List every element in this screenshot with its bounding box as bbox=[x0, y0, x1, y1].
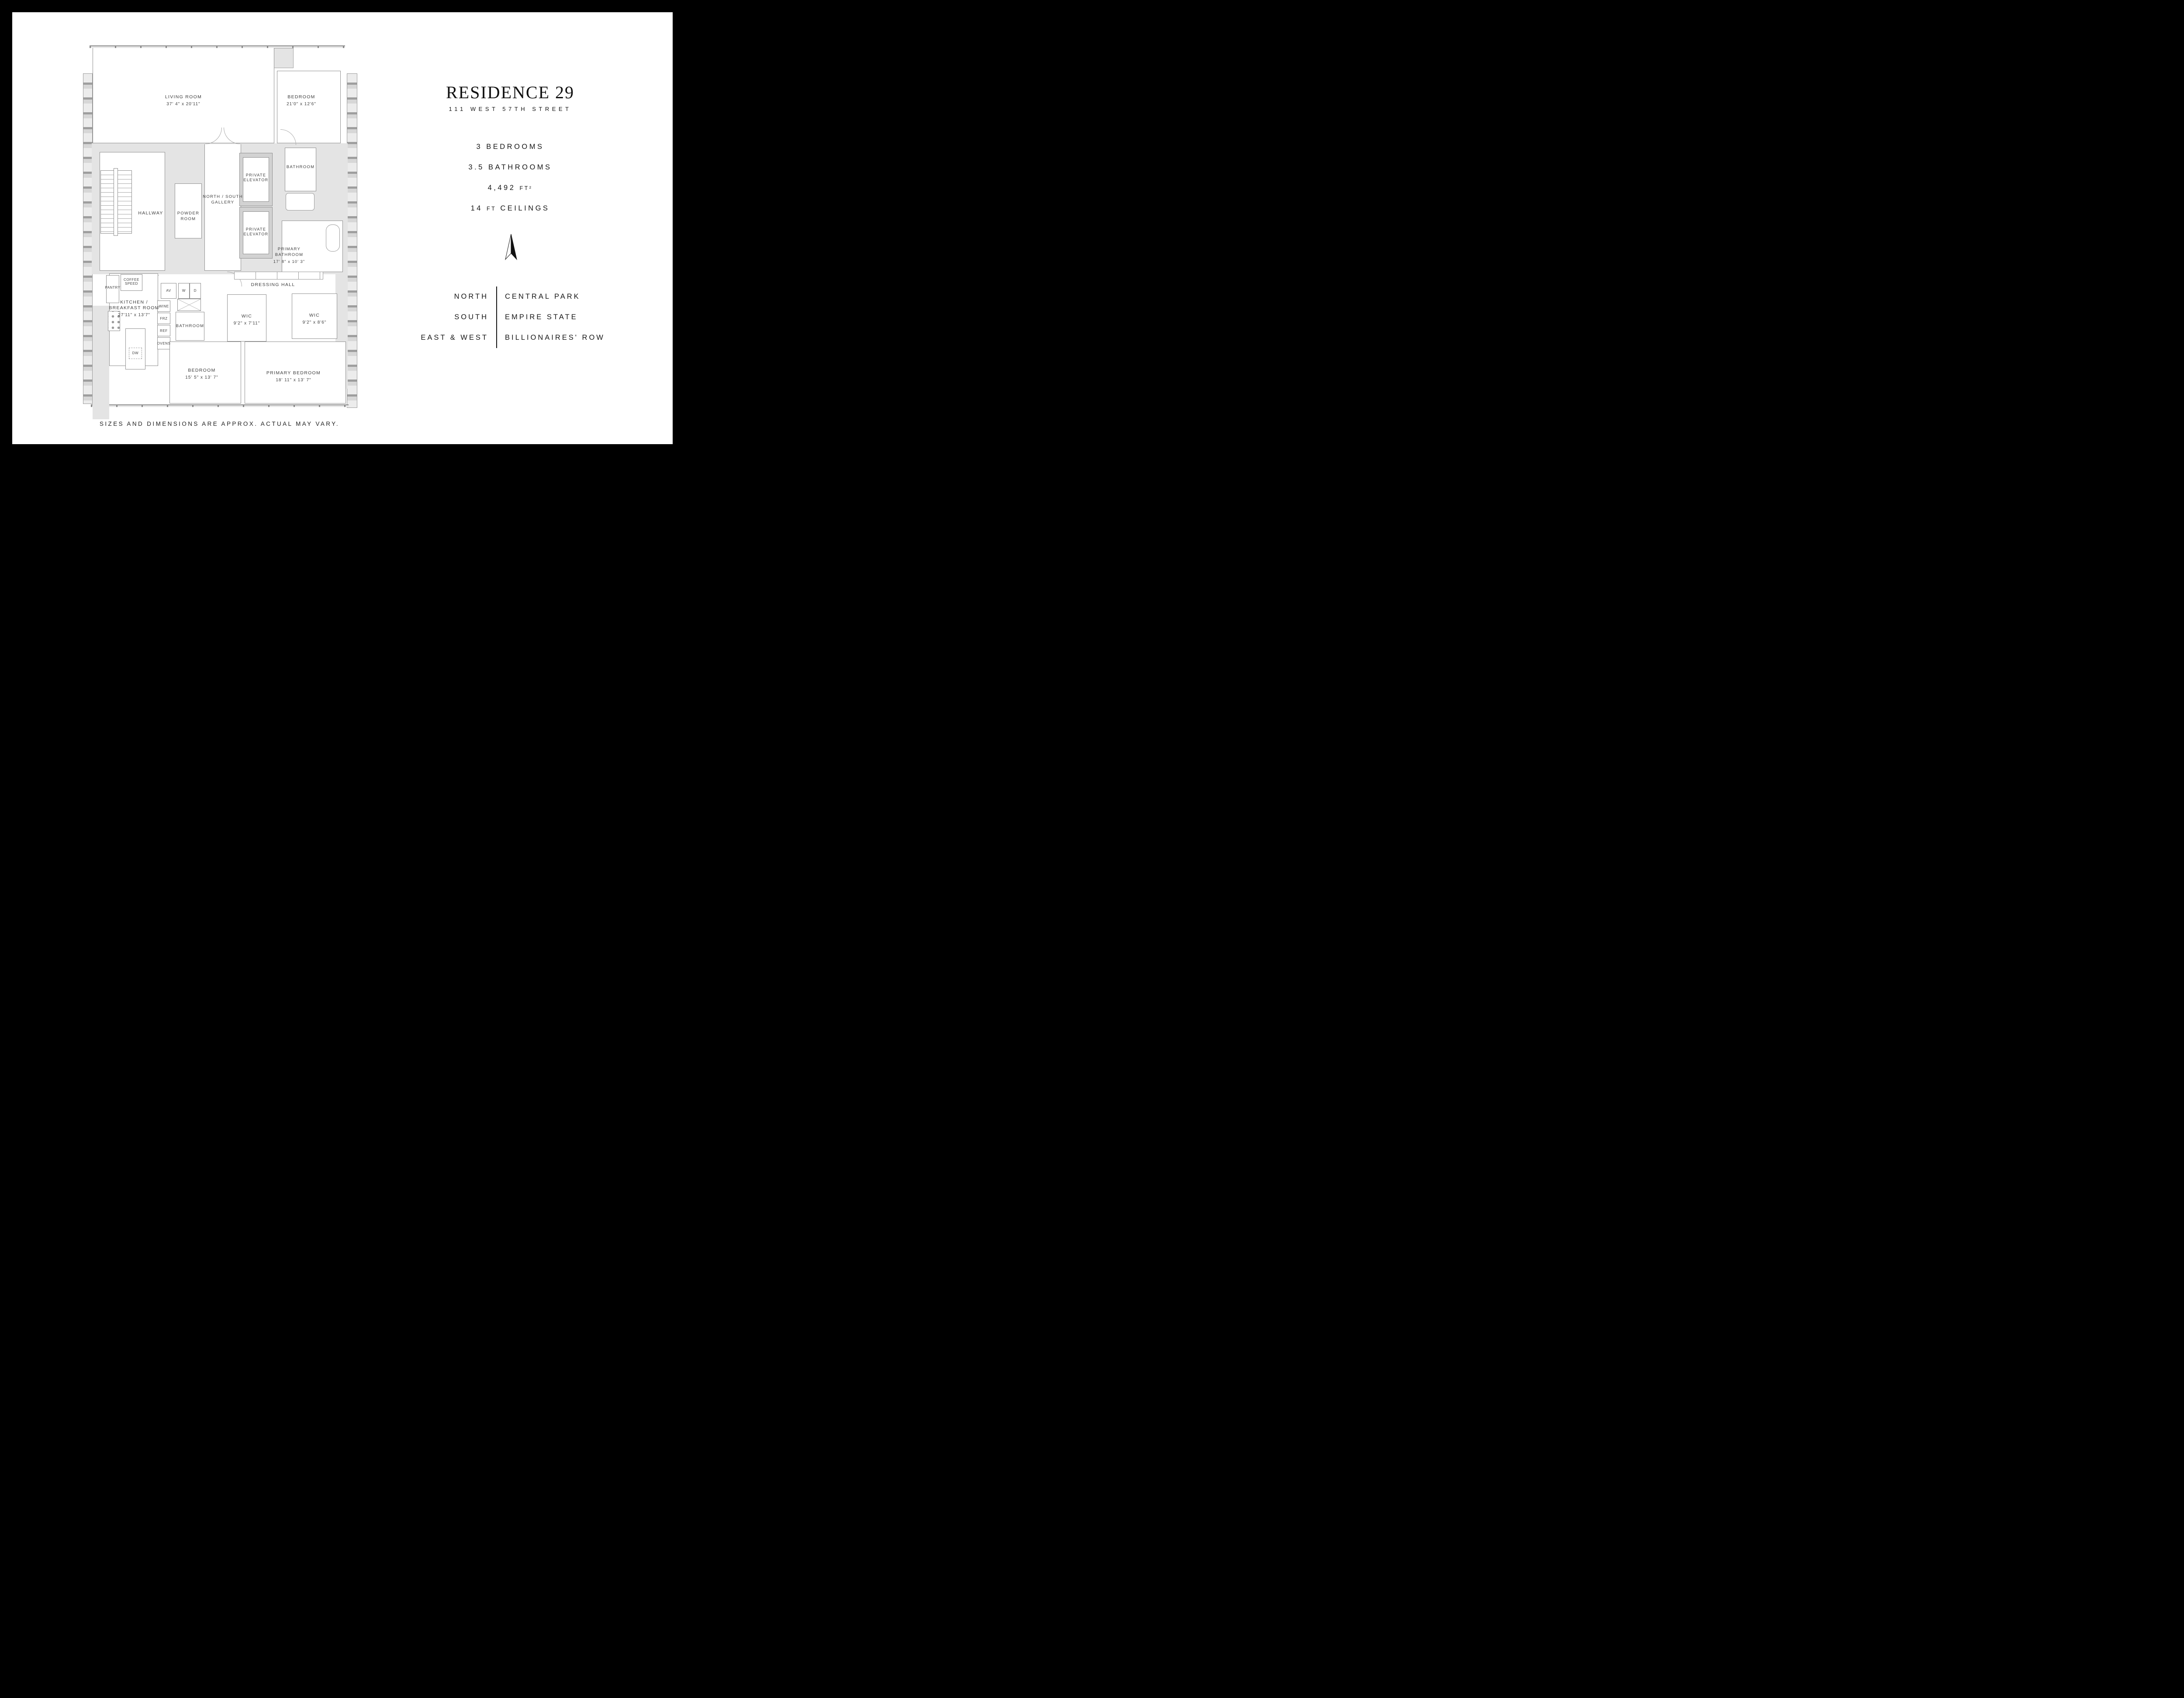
west-lower-wall bbox=[93, 306, 109, 419]
bathroom-top-label: BATHROOM bbox=[283, 164, 318, 170]
room-name: PRIMARY BEDROOM bbox=[254, 370, 333, 376]
stat-area: 4,492 FT² bbox=[414, 184, 606, 192]
address-subtitle: 111 WEST 57TH STREET bbox=[414, 106, 606, 112]
room-dims: 15' 5" x 13' 7" bbox=[167, 375, 237, 380]
coffee-label: COFFEE SPEED bbox=[121, 278, 142, 286]
stat-bedrooms: 3 BEDROOMS bbox=[414, 143, 606, 151]
orientation-row: NORTH CENTRAL PARK bbox=[388, 286, 650, 307]
private-elevator-1-label: PRIVATE ELEVATOR bbox=[243, 173, 269, 183]
bedroom-top-label: BEDROOM 21'0" x 12'6" bbox=[275, 94, 328, 107]
wic-2-label: WIC 9'2" x 8'6" bbox=[292, 313, 337, 325]
orientation-table: NORTH CENTRAL PARK SOUTH EMPIRE STATE EA… bbox=[388, 286, 650, 348]
room-dims: 9'2" x 8'6" bbox=[292, 320, 337, 325]
dressing-hall-label: DRESSING HALL bbox=[242, 282, 304, 288]
room-name: WIC bbox=[227, 314, 266, 319]
room-dims: 18' 11" x 13' 7" bbox=[254, 377, 333, 383]
floorplan-sheet: LIVING ROOM 37' 4" x 20'11" BEDROOM 21'0… bbox=[0, 0, 685, 456]
gallery-room bbox=[204, 144, 241, 271]
disclaimer-note: SIZES AND DIMENSIONS ARE APPROX. ACTUAL … bbox=[100, 421, 339, 427]
dishwasher-label: DW bbox=[129, 351, 142, 355]
room-name: WIC bbox=[292, 313, 337, 318]
ceilings-suffix: CEILINGS bbox=[500, 204, 549, 212]
freezer-label: FRZ bbox=[157, 317, 170, 321]
stat-bathrooms: 3.5 BATHROOMS bbox=[414, 163, 606, 172]
gallery-label: NORTH / SOUTH GALLERY bbox=[203, 194, 243, 205]
floor-plan: LIVING ROOM 37' 4" x 20'11" BEDROOM 21'0… bbox=[83, 44, 359, 415]
room-dims: 21'0" x 12'6" bbox=[275, 101, 328, 107]
north-arrow-icon bbox=[502, 233, 520, 263]
room-name: BEDROOM bbox=[275, 94, 328, 100]
stair-rail bbox=[114, 168, 118, 236]
kitchen-label: KITCHEN / BREAKFAST ROOM 27'11" x 13'7" bbox=[106, 300, 162, 318]
bathroom-lower-label: BATHROOM bbox=[175, 323, 205, 329]
area-unit: FT² bbox=[519, 185, 532, 191]
direction-label: SOUTH bbox=[388, 313, 496, 321]
powder-room-label: POWDER ROOM bbox=[174, 211, 202, 222]
primary-bathtub bbox=[326, 224, 340, 252]
room-name: PRIMARY BATHROOM bbox=[266, 246, 312, 258]
orientation-row: EAST & WEST BILLIONAIRES' ROW bbox=[388, 328, 650, 348]
view-label: EMPIRE STATE bbox=[496, 307, 578, 328]
refrigerator-label: REF bbox=[157, 329, 170, 333]
pantry-label: PANTRY bbox=[101, 286, 124, 290]
stat-ceilings: 14 FT CEILINGS bbox=[414, 204, 606, 213]
view-label: CENTRAL PARK bbox=[496, 286, 581, 307]
west-wall bbox=[83, 73, 93, 404]
bathtub-top bbox=[286, 193, 314, 211]
direction-label: EAST & WEST bbox=[388, 334, 496, 342]
direction-label: NORTH bbox=[388, 293, 496, 301]
dryer-label: D bbox=[190, 289, 201, 293]
room-dims: 17' 8" x 10' 3" bbox=[266, 259, 312, 265]
private-elevator-2-label: PRIVATE ELEVATOR bbox=[243, 227, 269, 237]
room-name: BEDROOM bbox=[167, 368, 237, 373]
room-dims: 9'2" x 7'11" bbox=[227, 321, 266, 326]
ceilings-value: 14 bbox=[471, 204, 483, 212]
primary-bathroom-label: PRIMARY BATHROOM 17' 8" x 10' 3" bbox=[266, 246, 312, 265]
shower-stall bbox=[177, 299, 201, 311]
living-room-label: LIVING ROOM 37' 4" x 20'11" bbox=[149, 94, 218, 107]
av-label: AV bbox=[161, 289, 176, 293]
ovens-label: OVENS bbox=[156, 342, 171, 345]
dressing-cabinets bbox=[234, 272, 323, 280]
room-dims: 37' 4" x 20'11" bbox=[149, 101, 218, 107]
ceilings-unit: FT bbox=[487, 206, 496, 212]
primary-bedroom-label: PRIMARY BEDROOM 18' 11" x 13' 7" bbox=[254, 370, 333, 383]
room-dims: 27'11" x 13'7" bbox=[106, 312, 162, 318]
east-wall bbox=[347, 73, 357, 408]
residence-title: RESIDENCE 29 bbox=[414, 82, 606, 103]
wine-label: WINE bbox=[157, 304, 170, 308]
washer-label: W bbox=[178, 289, 190, 293]
area-value: 4,492 bbox=[488, 184, 516, 192]
room-name: KITCHEN / BREAKFAST ROOM bbox=[106, 300, 162, 311]
orientation-row: SOUTH EMPIRE STATE bbox=[388, 307, 650, 328]
room-name: LIVING ROOM bbox=[149, 94, 218, 100]
view-label: BILLIONAIRES' ROW bbox=[496, 328, 605, 348]
bedroom-lower-label: BEDROOM 15' 5" x 13' 7" bbox=[167, 368, 237, 380]
hallway-label: HALLWAY bbox=[129, 211, 173, 216]
south-wall bbox=[91, 404, 349, 407]
wic-1-label: WIC 9'2" x 7'11" bbox=[227, 314, 266, 326]
